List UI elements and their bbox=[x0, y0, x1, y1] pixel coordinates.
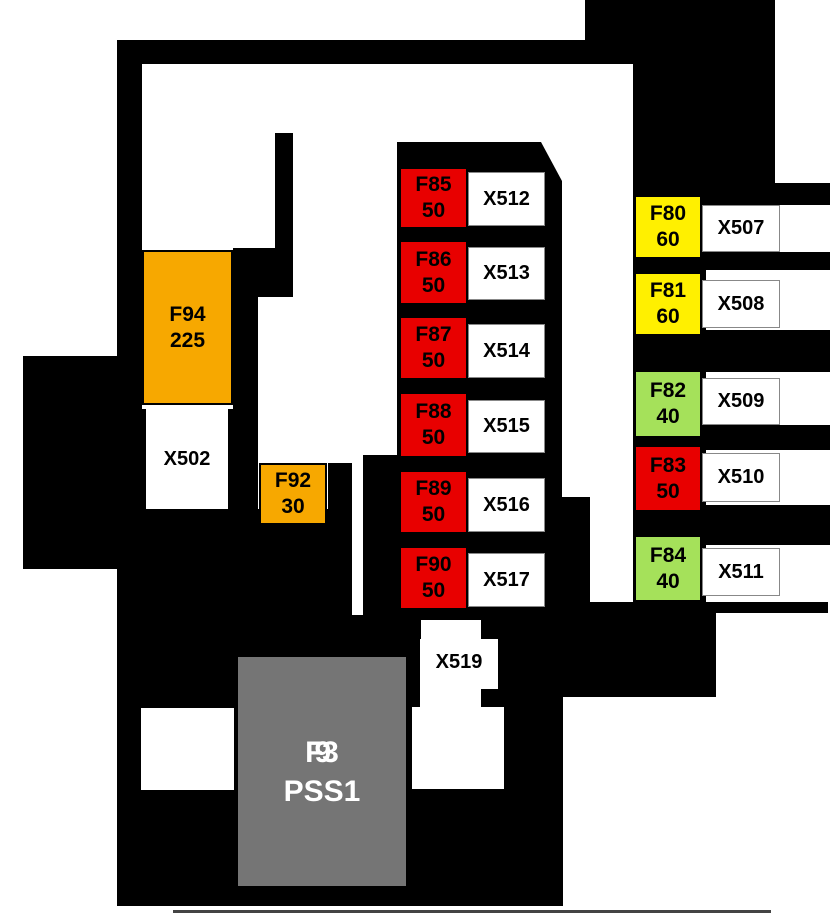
fuse-rating: 50 bbox=[422, 502, 445, 528]
connector-label: X516 bbox=[483, 494, 530, 517]
fuse-id: F84 bbox=[650, 543, 686, 569]
fuse-f92: F92 30 bbox=[259, 463, 327, 525]
fuse-box-diagram: F94 225 F92 30 X502 F85 50 F86 50 F87 50… bbox=[0, 0, 840, 914]
connector-label: X507 bbox=[718, 217, 765, 240]
fuse-rating: 40 bbox=[656, 569, 679, 595]
connector-label: X510 bbox=[718, 466, 765, 489]
connector-x519-cutout bbox=[412, 707, 504, 789]
fuse-id: F85 bbox=[415, 172, 451, 198]
panel-region bbox=[633, 64, 775, 183]
connector-label: X508 bbox=[718, 293, 765, 316]
fuse-f81: F81 60 bbox=[634, 272, 702, 336]
bottom-line bbox=[173, 910, 771, 913]
fuse-f90: F90 50 bbox=[399, 546, 468, 610]
connector-x508: X508 bbox=[702, 280, 780, 328]
fuse-rating: 50 bbox=[656, 479, 679, 505]
fuse-id: F86 bbox=[415, 247, 451, 273]
connector-x502: X502 bbox=[146, 409, 228, 509]
relay-f93: F93 PSS1 bbox=[238, 657, 406, 886]
fuse-id: F80 bbox=[650, 201, 686, 227]
connector-x519-cutout bbox=[420, 689, 481, 707]
fuse-rating: 30 bbox=[281, 494, 304, 520]
connector-x519-cutout bbox=[421, 620, 481, 639]
panel-region bbox=[228, 409, 258, 509]
connector-x512: X512 bbox=[468, 172, 545, 226]
fuse-id: F94 bbox=[169, 302, 205, 328]
fuse-rating: 60 bbox=[656, 304, 679, 330]
relay-label: PSS1 bbox=[284, 772, 361, 811]
connector-x509: X509 bbox=[702, 378, 780, 425]
panel-region bbox=[258, 248, 293, 297]
fuse-id: F88 bbox=[415, 399, 451, 425]
fuse-rating: 50 bbox=[422, 348, 445, 374]
fuse-f80: F80 60 bbox=[634, 195, 702, 259]
connector-x517: X517 bbox=[468, 553, 545, 607]
white-cutout bbox=[352, 509, 363, 615]
connector-x511: X511 bbox=[702, 548, 780, 596]
fuse-f82: F82 40 bbox=[634, 370, 702, 438]
fuse-f87: F87 50 bbox=[399, 316, 468, 380]
white-cutout bbox=[141, 708, 234, 790]
connector-x519: X519 bbox=[418, 650, 500, 674]
connector-x516: X516 bbox=[468, 478, 545, 532]
connector-x514: X514 bbox=[468, 324, 545, 378]
panel-region bbox=[117, 40, 775, 64]
fuse-id: F87 bbox=[415, 322, 451, 348]
panel-region bbox=[328, 463, 352, 509]
fuse-rating: 50 bbox=[422, 273, 445, 299]
panel-region bbox=[363, 455, 397, 509]
fuse-id: F90 bbox=[415, 552, 451, 578]
connector-label: X512 bbox=[483, 188, 530, 211]
fuse-f94: F94 225 bbox=[142, 250, 233, 405]
connector-x510: X510 bbox=[702, 453, 780, 502]
connector-label: X511 bbox=[718, 561, 764, 584]
connector-x507: X507 bbox=[702, 205, 780, 252]
connector-label: X513 bbox=[483, 262, 530, 285]
fuse-f86: F86 50 bbox=[399, 240, 468, 305]
panel-region bbox=[633, 330, 830, 372]
fuse-rating: 50 bbox=[422, 425, 445, 451]
fuse-f88: F88 50 bbox=[399, 392, 468, 458]
connector-x515: X515 bbox=[468, 400, 545, 453]
panel-region bbox=[563, 613, 716, 697]
fuse-rating: 40 bbox=[656, 404, 679, 430]
panel-region bbox=[562, 497, 590, 613]
fuse-rating: 50 bbox=[422, 198, 445, 224]
connector-label: X514 bbox=[483, 340, 530, 363]
connector-label: X502 bbox=[164, 448, 211, 471]
fuse-rating: 60 bbox=[656, 227, 679, 253]
panel-region bbox=[585, 0, 775, 40]
connector-x513: X513 bbox=[468, 247, 545, 300]
connector-label: X509 bbox=[718, 390, 765, 413]
relay-id: F93 bbox=[305, 733, 339, 772]
fuse-f85: F85 50 bbox=[399, 167, 468, 229]
panel-region bbox=[117, 64, 142, 409]
fuse-id: F82 bbox=[650, 378, 686, 404]
connector-label: X519 bbox=[436, 651, 483, 674]
fuse-rating: 50 bbox=[422, 578, 445, 604]
fuse-id: F89 bbox=[415, 476, 451, 502]
fuse-f83: F83 50 bbox=[634, 445, 702, 512]
fuse-f89: F89 50 bbox=[399, 470, 468, 534]
fuse-id: F92 bbox=[275, 468, 311, 494]
connector-label: X517 bbox=[483, 569, 530, 592]
connector-label: X515 bbox=[483, 415, 530, 438]
fuse-rating: 225 bbox=[170, 328, 205, 354]
panel-region bbox=[23, 356, 117, 569]
fuse-id: F83 bbox=[650, 453, 686, 479]
fuse-f84: F84 40 bbox=[634, 535, 702, 602]
panel-region bbox=[117, 409, 146, 509]
panel-region bbox=[233, 248, 258, 409]
fuse-id: F81 bbox=[650, 278, 686, 304]
